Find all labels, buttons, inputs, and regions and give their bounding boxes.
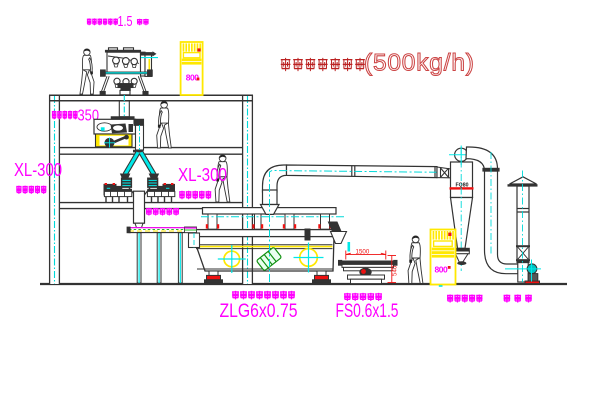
svg-text:(500kg/h): (500kg/h): [364, 50, 475, 77]
svg-text:800: 800: [435, 265, 448, 275]
svg-text:FQ80: FQ80: [456, 183, 469, 189]
svg-text:ZLG6x0.75: ZLG6x0.75: [220, 300, 298, 322]
svg-text:540: 540: [392, 265, 399, 276]
svg-text:800: 800: [186, 73, 199, 83]
svg-text:XL-300: XL-300: [14, 160, 62, 180]
svg-text:XL-300: XL-300: [178, 165, 227, 185]
svg-text:FS0.6x1.5: FS0.6x1.5: [336, 300, 399, 322]
svg-text:1.5: 1.5: [118, 14, 133, 30]
svg-text:1500: 1500: [356, 249, 370, 256]
